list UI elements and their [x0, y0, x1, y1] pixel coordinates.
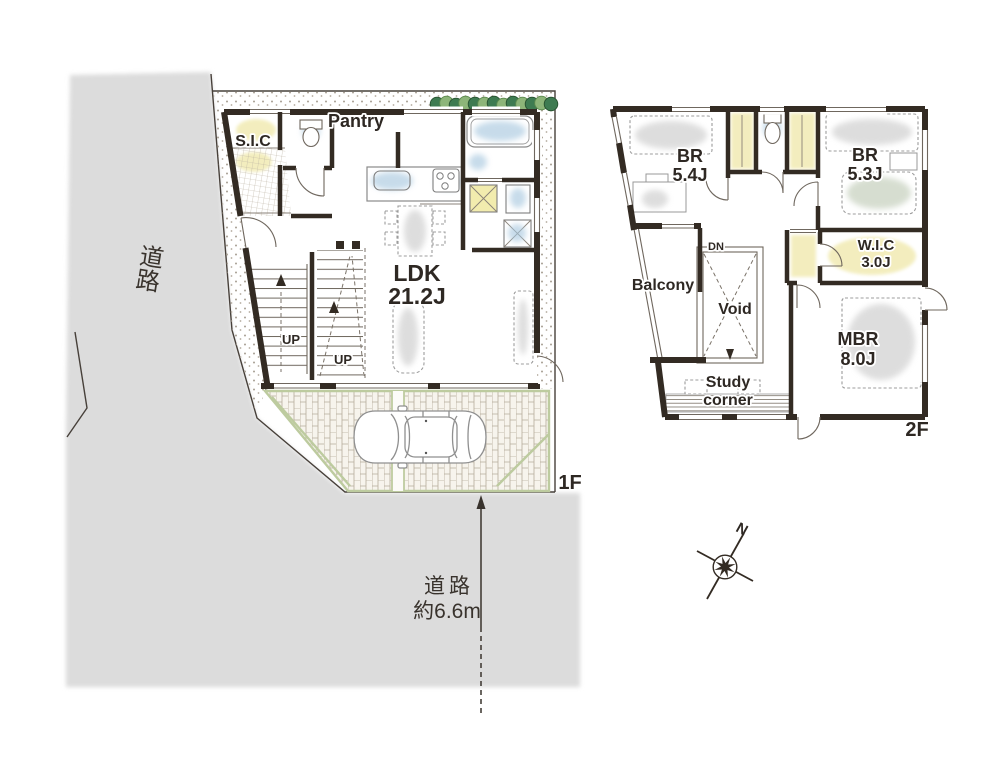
- room-size-br2: 5.3J: [847, 164, 882, 184]
- room-size-ldk: 21.2J: [388, 283, 446, 309]
- room-label-sic: S.I.C: [235, 133, 271, 150]
- stairs-down-label: DN: [708, 241, 724, 253]
- floor1-label: 1F: [558, 472, 581, 494]
- room-size-mbr: 8.0J: [840, 349, 875, 369]
- compass-north-label: N: [733, 519, 751, 539]
- room-label-br1: BR: [677, 146, 703, 166]
- room-label-void: Void: [718, 301, 751, 318]
- floor2-plan: BR 5.4J BR 5.3J W.I.C 3.0J Balcony Void …: [612, 105, 947, 442]
- floor2-label: 2F: [905, 419, 928, 441]
- compass: N: [697, 519, 753, 599]
- floor-plan-canvas: S.I.C Pantry LDK 21.2J UP UP 1F: [0, 0, 1000, 768]
- road-width-value: 約6.6m: [413, 600, 481, 623]
- closet-2: [790, 113, 815, 169]
- car-icon: [354, 406, 486, 468]
- room-size-wic: 3.0J: [861, 254, 890, 271]
- room-label-wic: W.I.C: [858, 237, 895, 254]
- stairs-up-label-1: UP: [282, 332, 300, 347]
- dining-set: [385, 206, 445, 256]
- room-label-balcony: Balcony: [632, 277, 694, 294]
- site-road-area: [66, 72, 580, 687]
- room-label-study-line1: Study: [706, 374, 751, 391]
- stairs-up-label-2: UP: [334, 352, 352, 367]
- road-bottom-label: 道路: [424, 575, 474, 598]
- room-size-br1: 5.4J: [672, 165, 707, 185]
- room-label-br2: BR: [852, 145, 878, 165]
- room-label-pantry: Pantry: [328, 111, 384, 131]
- toilet-2f: [763, 114, 781, 144]
- room-label-study-line2: corner: [703, 392, 753, 409]
- floor-plan-page: S.I.C Pantry LDK 21.2J UP UP 1F: [0, 0, 1000, 768]
- closet-3: [791, 235, 816, 277]
- toilet-1f: [300, 120, 322, 147]
- room-label-mbr: MBR: [838, 329, 879, 349]
- kitchen-island: [367, 167, 463, 204]
